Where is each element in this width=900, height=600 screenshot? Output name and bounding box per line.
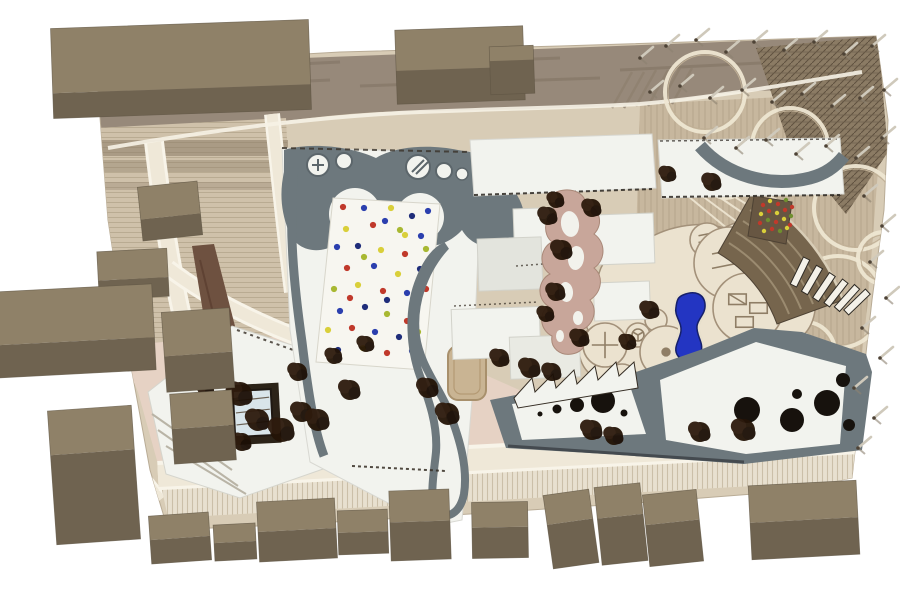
climbing-hold: [789, 214, 793, 218]
cardboard-block: [213, 523, 257, 561]
climbing-hold: [790, 205, 794, 209]
dark-grain-row: [100, 160, 285, 172]
climbing-hold: [784, 198, 788, 202]
confetti-dot: [361, 254, 367, 260]
confetti-dot: [402, 232, 408, 238]
cardboard-block: [543, 489, 599, 569]
model-scene-svg: [0, 0, 900, 600]
climbing-hold: [778, 229, 782, 233]
roof-hole: [538, 412, 543, 417]
confetti-dot: [361, 205, 367, 211]
roof-hole: [553, 405, 562, 414]
roof-hole: [843, 419, 855, 431]
confetti-dot: [349, 325, 355, 331]
cardboard-block: [51, 20, 312, 119]
cardboard-block: [642, 489, 703, 566]
cardboard-block: [337, 509, 389, 555]
confetti-dot: [409, 213, 415, 219]
confetti-dot: [423, 246, 429, 252]
play-circle-cross: [583, 323, 627, 367]
cardboard-block: [748, 480, 860, 560]
climbing-hold: [759, 212, 763, 216]
climbing-hold: [776, 202, 780, 206]
confetti-dot: [378, 247, 384, 253]
climbing-hold: [766, 218, 770, 222]
confetti-dot: [384, 311, 390, 317]
roof-hole: [792, 389, 802, 399]
confetti-dot: [382, 218, 388, 224]
confetti-dot: [380, 288, 386, 294]
cardboard-block: [137, 181, 202, 241]
cardboard-block: [148, 512, 211, 564]
climbing-hold: [774, 220, 778, 224]
cardboard-block: [0, 284, 156, 378]
roof-hole: [621, 410, 628, 417]
climbing-hold: [758, 221, 762, 225]
cardboard-block: [472, 502, 529, 559]
confetti-dot: [402, 251, 408, 257]
climbing-hold: [768, 199, 772, 203]
confetti-dot: [371, 263, 377, 269]
cardboard-block: [47, 405, 140, 545]
confetti-dot: [372, 329, 378, 335]
roof-hole: [780, 408, 804, 432]
confetti-dot: [388, 205, 394, 211]
cardboard-block: [161, 308, 234, 393]
climbing-hold: [785, 226, 789, 230]
confetti-dot: [395, 271, 401, 277]
climbing-hold: [767, 209, 771, 213]
climbing-hold: [782, 217, 786, 221]
confetti-dot: [397, 227, 403, 233]
cardboard-block: [389, 489, 451, 561]
confetti-dot: [384, 350, 390, 356]
confetti-dot: [331, 286, 337, 292]
confetti-dot: [325, 327, 331, 333]
dark-grain-row: [98, 140, 288, 156]
confetti-dot: [370, 222, 376, 228]
climbing-hold: [783, 208, 787, 212]
cardboard-block: [489, 45, 535, 95]
confetti-dot: [355, 243, 361, 249]
confetti-dot: [404, 290, 410, 296]
confetti-dot: [337, 308, 343, 314]
confetti-dot: [418, 233, 424, 239]
confetti-dot: [384, 297, 390, 303]
long-bar-building: [470, 134, 656, 196]
confetti-dot: [425, 208, 431, 214]
cardboard-block: [594, 483, 648, 565]
confetti-dot: [362, 304, 368, 310]
climbing-hold: [770, 227, 774, 231]
architectural-model-photo: [0, 0, 900, 600]
cardboard-block: [256, 498, 337, 562]
climbing-hold: [762, 229, 766, 233]
confetti-dot: [355, 282, 361, 288]
roof-hole: [814, 390, 840, 416]
confetti-dot: [340, 204, 346, 210]
confetti-dot: [343, 226, 349, 232]
confetti-dot: [334, 244, 340, 250]
roof-hole: [836, 373, 850, 387]
confetti-dot: [347, 295, 353, 301]
climbing-hold: [761, 203, 765, 207]
cardboard-block: [170, 390, 237, 464]
long-bar-building: [658, 138, 844, 198]
confetti-dot: [396, 334, 402, 340]
climbing-hold: [775, 211, 779, 215]
roof-hole: [570, 398, 584, 412]
confetti-dot: [344, 265, 350, 271]
